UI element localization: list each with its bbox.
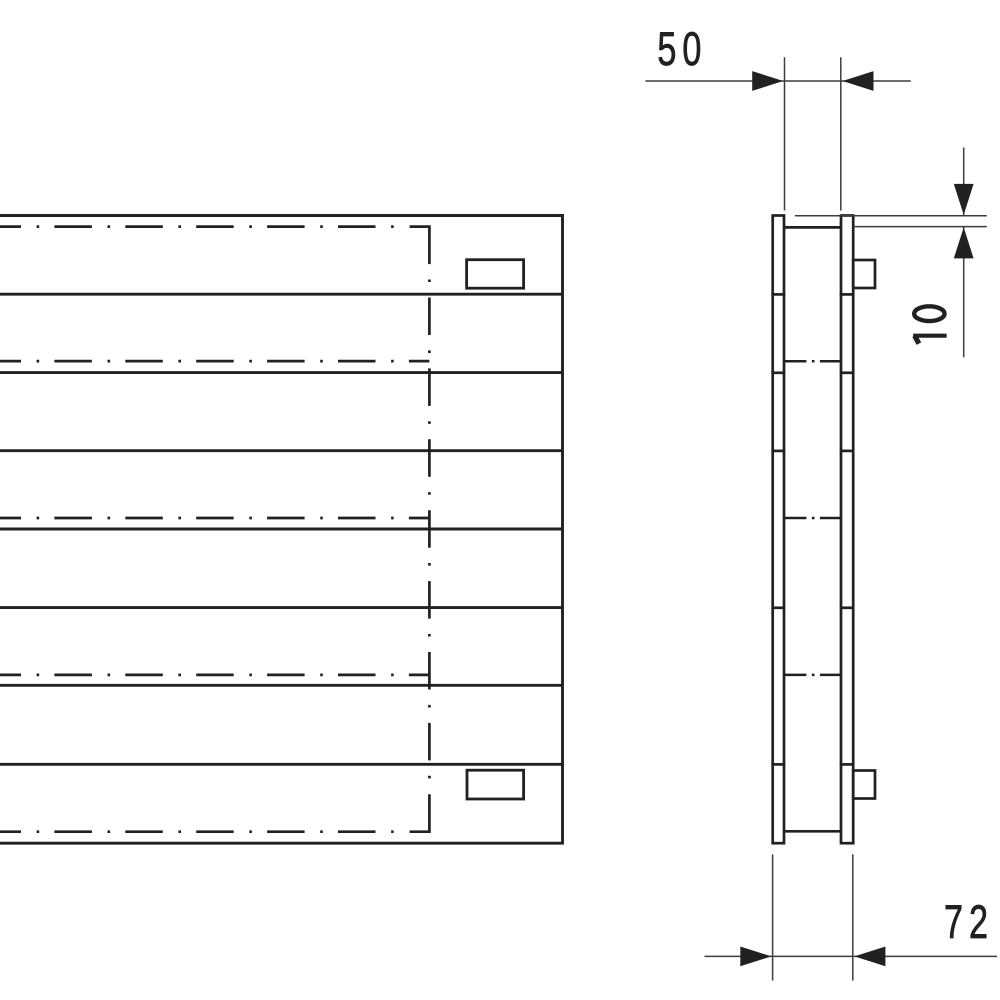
svg-text:50: 50 <box>657 23 707 76</box>
svg-text:72: 72 <box>944 895 994 948</box>
